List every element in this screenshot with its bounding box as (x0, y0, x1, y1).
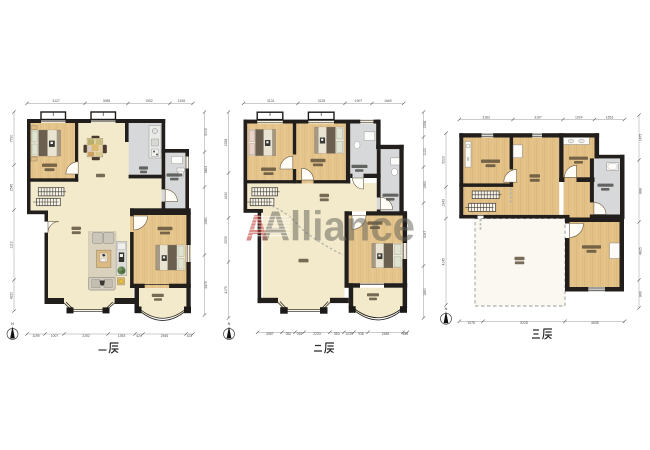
svg-text:3475: 3475 (204, 281, 208, 289)
svg-text:888: 888 (639, 188, 643, 194)
svg-text:939: 939 (297, 332, 303, 336)
svg-text:1653: 1653 (606, 115, 614, 119)
svg-text:4463: 4463 (204, 166, 208, 174)
svg-text:1907: 1907 (355, 99, 363, 103)
svg-text:3127: 3127 (52, 99, 60, 103)
svg-text:2555: 2555 (224, 236, 228, 244)
svg-text:1113: 1113 (10, 241, 14, 248)
svg-text:7730: 7730 (10, 135, 14, 143)
svg-text:3167: 3167 (534, 115, 542, 119)
svg-text:1078: 1078 (467, 321, 475, 325)
svg-text:1980: 1980 (204, 217, 208, 225)
svg-text:1943: 1943 (442, 199, 446, 207)
svg-text:2233: 2233 (313, 332, 321, 336)
svg-text:4220: 4220 (10, 292, 14, 300)
svg-text:4145: 4145 (442, 258, 446, 266)
svg-text:952: 952 (286, 332, 292, 336)
svg-text:4175: 4175 (224, 286, 228, 294)
svg-text:1635: 1635 (178, 99, 186, 103)
svg-text:1860: 1860 (423, 288, 427, 296)
svg-text:1199: 1199 (32, 334, 39, 338)
svg-text:N: N (445, 307, 448, 311)
svg-text:N: N (11, 322, 14, 326)
svg-text:938: 938 (358, 332, 364, 336)
svg-text:424: 424 (136, 334, 142, 338)
svg-text:1393: 1393 (118, 334, 126, 338)
svg-text:3183: 3183 (482, 115, 490, 119)
svg-text:4638: 4638 (591, 321, 599, 325)
svg-text:2545: 2545 (10, 184, 14, 192)
svg-text:3131: 3131 (267, 99, 275, 103)
svg-text:2358: 2358 (423, 121, 427, 129)
svg-text:5228: 5228 (520, 321, 528, 325)
svg-text:2252: 2252 (82, 334, 90, 338)
svg-text:3067: 3067 (423, 231, 427, 239)
svg-text:2545: 2545 (161, 334, 169, 338)
svg-text:5223: 5223 (442, 156, 446, 164)
svg-text:983: 983 (334, 332, 340, 336)
svg-text:2358: 2358 (224, 139, 228, 147)
svg-text:3085: 3085 (103, 99, 111, 103)
svg-text:N: N (228, 322, 231, 326)
svg-text:843: 843 (639, 291, 643, 297)
svg-text:4150: 4150 (224, 192, 228, 200)
svg-text:1007: 1007 (51, 334, 59, 338)
svg-text:4087: 4087 (266, 332, 274, 336)
svg-text:1952: 1952 (145, 99, 153, 103)
svg-text:4825: 4825 (639, 247, 643, 255)
svg-text:1963: 1963 (423, 181, 427, 189)
svg-text:1039: 1039 (345, 332, 353, 336)
svg-text:483: 483 (402, 332, 408, 336)
svg-text:1924: 1924 (575, 115, 583, 119)
svg-text:2485: 2485 (382, 332, 390, 336)
svg-text:5005: 5005 (204, 128, 208, 136)
svg-text:423: 423 (187, 334, 193, 338)
svg-text:1475: 1475 (639, 134, 643, 142)
svg-text:1669: 1669 (384, 99, 392, 103)
svg-text:3135: 3135 (318, 99, 326, 103)
svg-text:1123: 1123 (423, 148, 427, 155)
